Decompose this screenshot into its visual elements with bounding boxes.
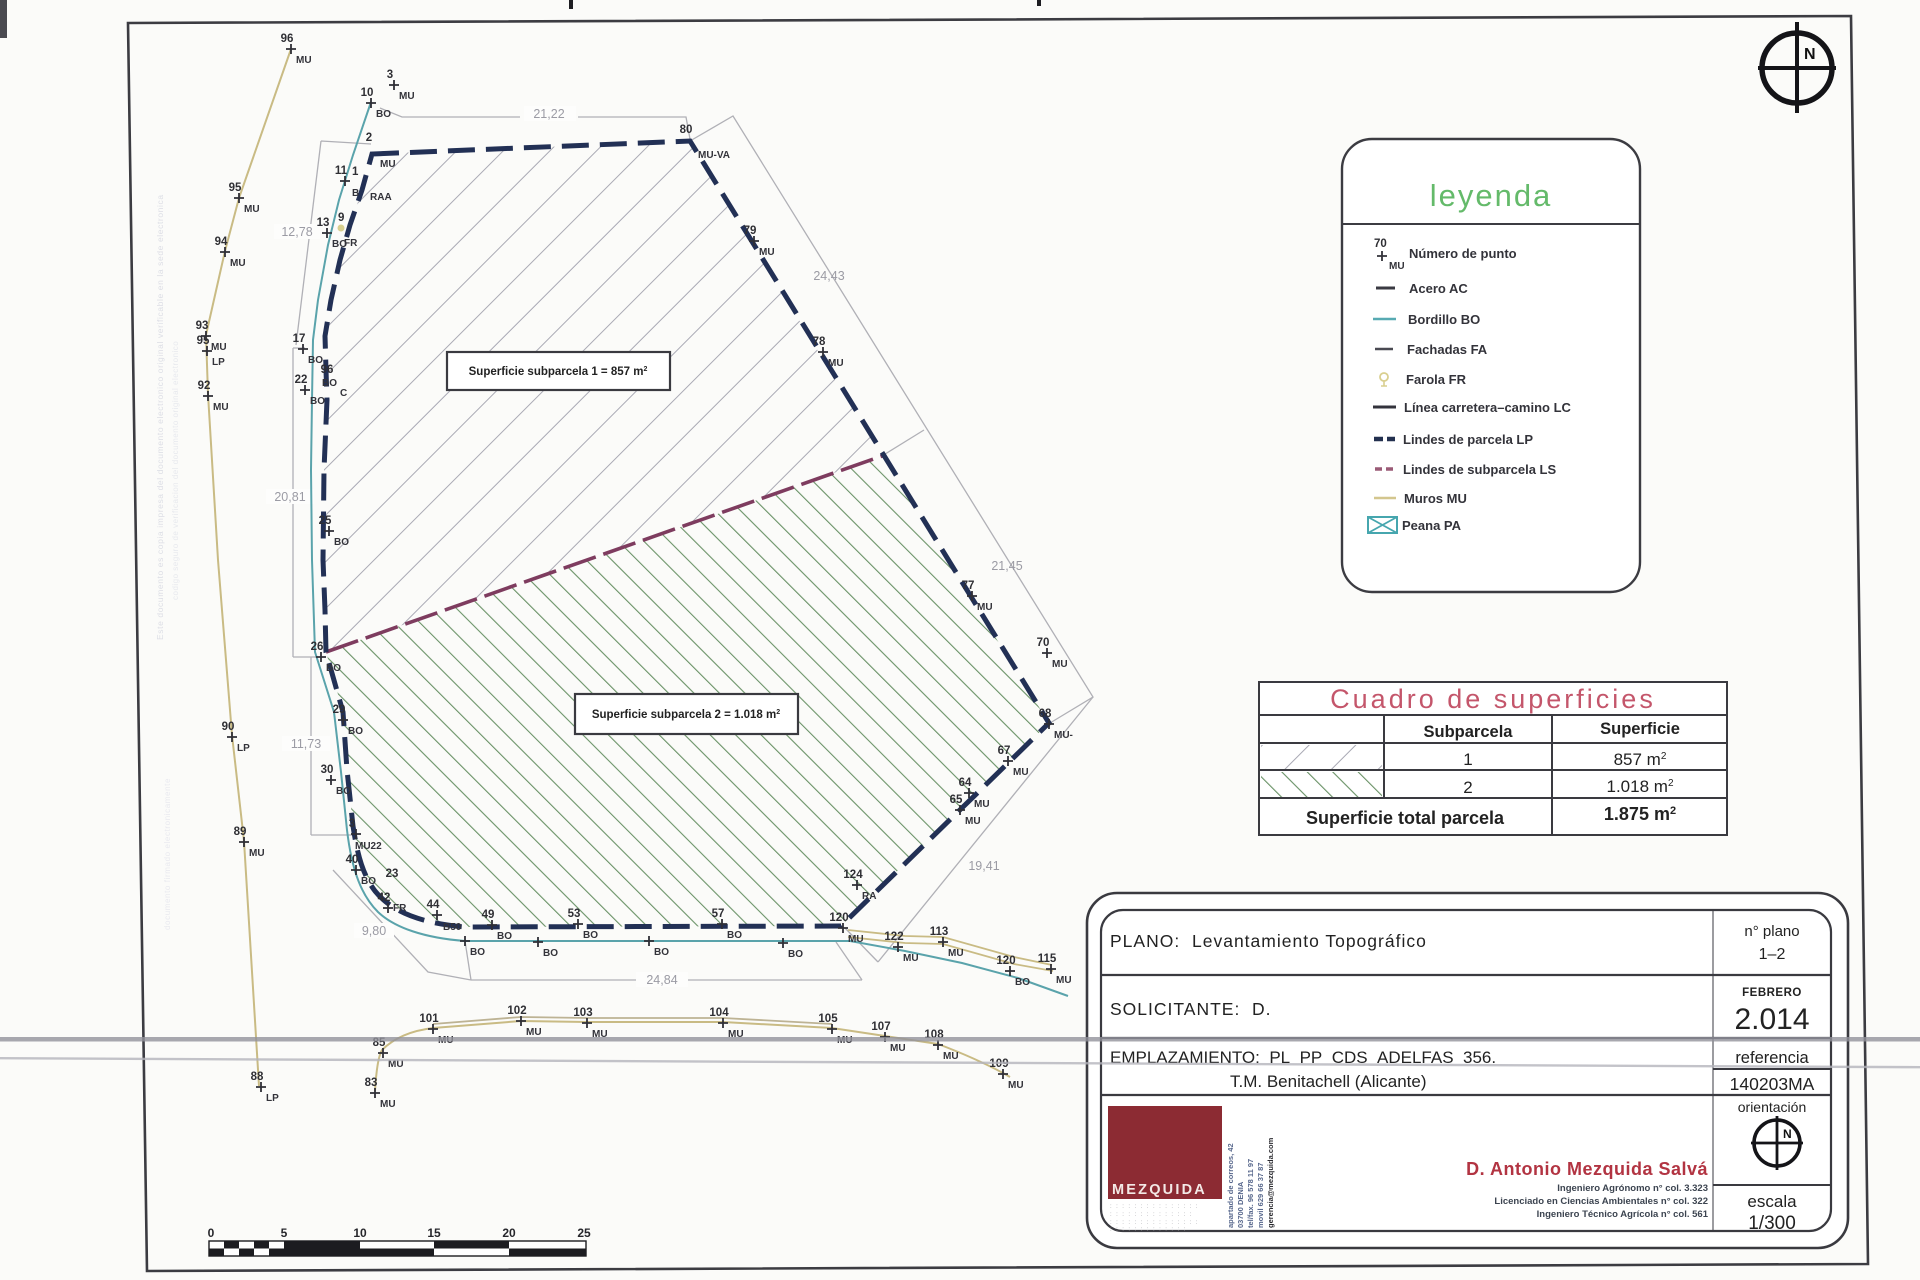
svg-text:5: 5 (281, 1226, 288, 1240)
svg-text:79: 79 (744, 225, 757, 237)
svg-text:leyenda: leyenda (1430, 178, 1553, 213)
svg-text:MU: MU (974, 799, 990, 810)
svg-text:SOLICITANTE: D.: SOLICITANTE: D. (1110, 999, 1272, 1019)
svg-text:105: 105 (818, 1013, 838, 1025)
svg-text:MU: MU (943, 1051, 959, 1062)
svg-text:FEBRERO: FEBRERO (1742, 987, 1802, 999)
svg-text:PLANO:: PLANO: (1110, 931, 1180, 951)
svg-text:Bordillo BO: Bordillo BO (1408, 312, 1480, 327)
svg-text:2: 2 (1463, 778, 1472, 797)
svg-text:68: 68 (1039, 708, 1052, 720)
svg-text:MU: MU (1052, 659, 1068, 670)
svg-text:N: N (1783, 1127, 1792, 1141)
svg-text:78: 78 (813, 336, 826, 348)
svg-text:65: 65 (950, 794, 963, 806)
svg-text:107: 107 (871, 1021, 890, 1033)
svg-text:MU: MU (526, 1027, 542, 1038)
svg-text:Cuadro de superficies: Cuadro de superficies (1330, 684, 1656, 714)
svg-text:Licenciado en Ciencias Ambient: Licenciado en Ciencias Ambientales n° co… (1494, 1196, 1708, 1207)
svg-text:MU: MU (759, 247, 775, 258)
svg-text:1: 1 (352, 166, 359, 178)
svg-text:80: 80 (680, 124, 693, 136)
svg-text:89: 89 (234, 826, 247, 838)
svg-text:29: 29 (333, 704, 346, 716)
svg-text:12,78: 12,78 (281, 225, 312, 239)
svg-text:120: 120 (996, 955, 1015, 967)
svg-text:Superficie total parcela: Superficie total parcela (1306, 808, 1505, 828)
svg-text:1.875 m2: 1.875 m2 (1604, 804, 1676, 824)
svg-text:BO: BO (348, 726, 363, 737)
svg-text:21,45: 21,45 (991, 559, 1022, 573)
svg-text:BO: BO (326, 663, 341, 674)
svg-text:MU: MU (1389, 261, 1405, 272)
svg-text:MU: MU (890, 1043, 906, 1054)
svg-text:BO: BO (376, 109, 391, 120)
svg-text:MU-: MU- (1054, 730, 1073, 741)
svg-text:20: 20 (502, 1226, 516, 1240)
svg-text:30: 30 (321, 764, 334, 776)
svg-text:2.014: 2.014 (1734, 1003, 1809, 1036)
svg-text:9,80: 9,80 (362, 924, 386, 938)
svg-text:BO: BO (310, 396, 325, 407)
svg-text:96: 96 (281, 33, 294, 45)
svg-text:Este documento es copia impres: Este documento es copia impresa del docu… (155, 194, 165, 640)
svg-text:B: B (352, 188, 359, 199)
svg-text:FR: FR (344, 238, 358, 249)
svg-text:MU: MU (848, 934, 864, 945)
svg-text:103: 103 (573, 1007, 592, 1019)
svg-text:movil 629 66 37 87: movil 629 66 37 87 (1256, 1163, 1265, 1228)
svg-text:88: 88 (251, 1071, 264, 1083)
svg-text:101: 101 (419, 1013, 439, 1025)
svg-text:Lindes de parcela LP: Lindes de parcela LP (1403, 432, 1533, 447)
svg-text:LP: LP (266, 1093, 279, 1104)
svg-text:MU: MU (828, 358, 844, 369)
svg-text:94: 94 (215, 236, 228, 248)
svg-text:Superficie subparcela 2 = 1.01: Superficie subparcela 2 = 1.018 m2 (592, 709, 780, 721)
svg-text:apartado de correos, 42: apartado de correos, 42 (1226, 1143, 1235, 1228)
svg-text:3: 3 (387, 69, 393, 81)
svg-text:92: 92 (198, 380, 211, 392)
svg-text:03700 DENIA: 03700 DENIA (1236, 1181, 1245, 1228)
svg-text:2: 2 (366, 132, 372, 144)
svg-text:MU: MU (296, 55, 312, 66)
svg-text:Subparcela: Subparcela (1424, 723, 1514, 741)
svg-text:Peana PA: Peana PA (1402, 518, 1462, 533)
svg-text:Acero AC: Acero AC (1409, 281, 1468, 296)
svg-text:Ingeniero Agrónomo n° col. 3.3: Ingeniero Agrónomo n° col. 3.323 (1557, 1183, 1708, 1194)
svg-text:Ingeniero Técnico Agrícola n°: Ingeniero Técnico Agrícola n° col. 561 (1537, 1209, 1709, 1220)
svg-text:MU: MU (380, 159, 396, 170)
svg-text:1: 1 (1463, 750, 1472, 769)
svg-text:N: N (1804, 46, 1816, 63)
svg-text:67: 67 (998, 745, 1011, 757)
svg-text:: : : : : : : : : : : : :: : : : : : : : : : : : : : (1110, 1227, 1187, 1233)
svg-text:102: 102 (507, 1005, 526, 1017)
svg-text:BO: BO (334, 537, 349, 548)
svg-text:BO: BO (727, 930, 742, 941)
svg-text:BO: BO (497, 931, 512, 942)
svg-text:referencia: referencia (1735, 1049, 1809, 1067)
svg-text:1.018 m2: 1.018 m2 (1607, 777, 1674, 796)
svg-text:104: 104 (709, 1007, 729, 1019)
svg-text:MU: MU (965, 816, 981, 827)
svg-text:MU: MU (948, 948, 964, 959)
svg-text:Línea carretera–camino LC: Línea carretera–camino LC (1404, 400, 1572, 415)
svg-text:Lindes de subparcela LS: Lindes de subparcela LS (1403, 462, 1556, 477)
svg-text:RAA: RAA (370, 192, 392, 203)
svg-text:90: 90 (222, 721, 235, 733)
svg-text:MU: MU (213, 402, 229, 413)
svg-text:Número de punto: Número de punto (1409, 246, 1517, 261)
svg-text:120: 120 (829, 912, 848, 924)
svg-text:MU: MU (211, 342, 227, 353)
svg-text:70: 70 (1374, 238, 1387, 250)
svg-text:MU: MU (1008, 1080, 1024, 1091)
svg-text:57: 57 (712, 908, 725, 920)
svg-text:113: 113 (930, 926, 949, 938)
svg-text:44: 44 (427, 899, 440, 911)
svg-text:MU: MU (977, 602, 993, 613)
svg-text:escala: escala (1747, 1192, 1797, 1211)
svg-text:D. Antonio Mezquida Salvá: D. Antonio Mezquida Salvá (1466, 1159, 1708, 1179)
svg-text:10: 10 (361, 87, 374, 99)
svg-text:BO: BO (470, 947, 485, 958)
svg-text:93: 93 (196, 320, 209, 332)
svg-text:LP: LP (212, 357, 225, 368)
svg-text:96: 96 (321, 364, 334, 376)
svg-text:10: 10 (353, 1226, 367, 1240)
svg-text:FR: FR (393, 903, 407, 914)
svg-text:Levantamiento Topográfico: Levantamiento Topográfico (1192, 931, 1427, 951)
svg-text:24,84: 24,84 (646, 973, 677, 987)
svg-text:140203MA: 140203MA (1730, 1074, 1815, 1094)
svg-text:C: C (340, 388, 347, 399)
svg-text:B50: B50 (443, 922, 462, 933)
svg-text:tel/fax. 96 578 11 97: tel/fax. 96 578 11 97 (1246, 1159, 1255, 1228)
svg-text:13: 13 (317, 217, 330, 229)
svg-text:21,22: 21,22 (533, 107, 564, 121)
svg-text:0: 0 (208, 1226, 215, 1240)
svg-text:11: 11 (335, 165, 348, 177)
svg-text:Superficie subparcela 1 = 857: Superficie subparcela 1 = 857 m2 (469, 366, 648, 378)
svg-text:orientación: orientación (1738, 1099, 1807, 1115)
svg-text:: : : : : : : : : : : : : :: : : : : : : : : : : : : : : (1110, 1212, 1193, 1218)
svg-text:MU: MU (399, 91, 415, 102)
svg-text:BO: BO (543, 948, 558, 959)
svg-text:40: 40 (346, 854, 359, 866)
svg-text:83: 83 (365, 1077, 378, 1089)
svg-text:BO: BO (361, 876, 376, 887)
svg-text:42: 42 (378, 892, 391, 904)
svg-text:115: 115 (1038, 953, 1057, 965)
svg-text:11,73: 11,73 (291, 737, 321, 751)
svg-text:19,41: 19,41 (968, 859, 999, 873)
svg-text:17: 17 (293, 333, 306, 345)
svg-text:Superficie: Superficie (1600, 720, 1680, 738)
svg-text:24,43: 24,43 (813, 269, 844, 283)
svg-text:MU-VA: MU-VA (698, 150, 730, 161)
svg-text:MU: MU (380, 1099, 396, 1110)
svg-text:53: 53 (568, 908, 581, 920)
svg-text:9: 9 (338, 212, 344, 224)
svg-text:T.M. Benitachell (Alicante): T.M. Benitachell (Alicante) (1230, 1072, 1427, 1091)
svg-text:20,81: 20,81 (274, 490, 305, 504)
svg-text:MU: MU (903, 953, 919, 964)
svg-text:857 m2: 857 m2 (1614, 750, 1667, 769)
svg-text:Farola FR: Farola FR (1406, 372, 1467, 387)
svg-text:22: 22 (295, 374, 308, 386)
svg-text:25: 25 (319, 515, 332, 527)
svg-text:15: 15 (427, 1226, 441, 1240)
svg-text:3: 3 (349, 818, 355, 830)
svg-text:25: 25 (577, 1226, 591, 1240)
svg-text:95: 95 (197, 335, 210, 347)
svg-text:1–2: 1–2 (1759, 946, 1786, 963)
svg-text:70: 70 (1037, 637, 1050, 649)
svg-text:documento firmado electronicam: documento firmado electronicamente (163, 778, 172, 930)
svg-text:BO: BO (336, 786, 351, 797)
svg-text:LP: LP (237, 743, 250, 754)
svg-text:BO: BO (322, 378, 337, 389)
svg-text:: : : : : : : : : : : : : : :: : : : : : : : : : : : : : : : (1110, 1204, 1199, 1210)
svg-text:BO: BO (654, 947, 669, 958)
svg-text:MU: MU (230, 258, 246, 269)
svg-text:MU: MU (244, 204, 260, 215)
svg-text:: : : : : : : : : : : : : : :: : : : : : : : : : : : : : : : (1110, 1220, 1199, 1226)
svg-text:122: 122 (884, 931, 903, 943)
svg-text:MU22: MU22 (355, 841, 382, 852)
svg-text:23: 23 (386, 868, 399, 880)
svg-text:gerencia@mezquida.com: gerencia@mezquida.com (1266, 1137, 1275, 1228)
svg-text:77: 77 (962, 580, 975, 592)
svg-text:BO: BO (788, 949, 803, 960)
svg-text:26: 26 (311, 641, 324, 653)
svg-text:Fachadas FA: Fachadas FA (1407, 342, 1488, 357)
svg-text:Muros MU: Muros MU (1404, 491, 1467, 506)
svg-text:MU: MU (249, 848, 265, 859)
svg-text:MEZQUIDA: MEZQUIDA (1112, 1182, 1207, 1198)
svg-text:1/300: 1/300 (1748, 1213, 1796, 1234)
svg-text:RA: RA (862, 891, 876, 902)
svg-text:BO: BO (583, 930, 598, 941)
svg-text:124: 124 (843, 869, 863, 881)
svg-text:n° plano: n° plano (1744, 923, 1799, 940)
svg-text:95: 95 (229, 182, 242, 194)
svg-text:codigo seguro de verificacion: codigo seguro de verificacion del docume… (171, 341, 180, 600)
svg-text:64: 64 (959, 777, 972, 789)
svg-text:49: 49 (482, 909, 495, 921)
svg-text:MU: MU (1056, 975, 1072, 986)
svg-text:MU: MU (1013, 767, 1029, 778)
svg-text:BO: BO (1015, 977, 1030, 988)
